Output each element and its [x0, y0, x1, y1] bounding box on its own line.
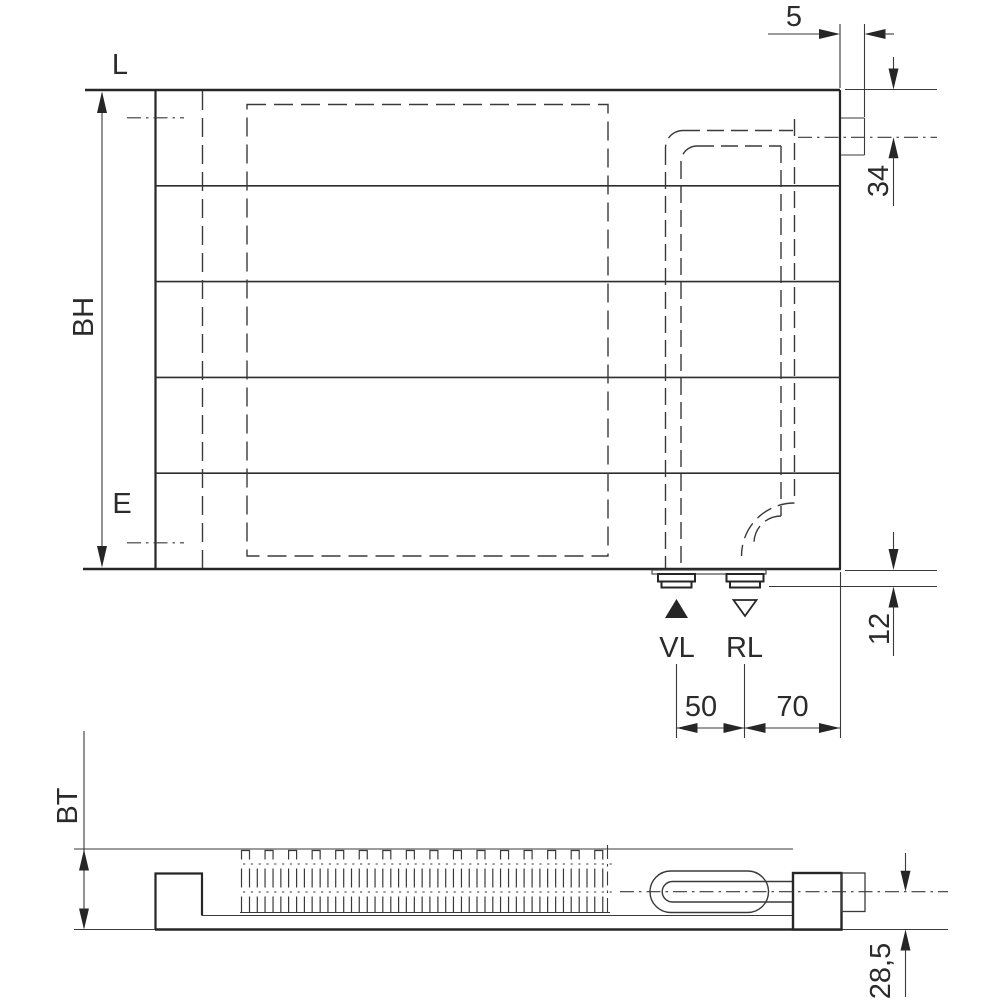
side-connection-stub — [841, 118, 865, 155]
label-rl: RL — [726, 632, 763, 664]
left-end-bracket — [156, 874, 203, 930]
label-bt: BT — [52, 787, 84, 824]
radiator-dimension-drawing: VL RL BH L E 5 34 12 — [0, 0, 1000, 1000]
dim-5-value: 5 — [786, 1, 802, 33]
supply-flow-triangle — [665, 599, 688, 618]
return-flow-triangle — [734, 600, 757, 616]
label-bh: BH — [68, 297, 100, 337]
dim-12-value: 12 — [864, 613, 896, 645]
label-l: L — [112, 49, 128, 81]
top-view — [74, 845, 948, 930]
label-vl: VL — [659, 632, 694, 664]
label-e: E — [112, 488, 131, 520]
connection-block — [793, 873, 842, 930]
vl-nipple — [658, 574, 695, 588]
panel-separator-lines — [155, 186, 840, 473]
dim-bh: BH — [68, 92, 107, 568]
dim-70-value: 70 — [776, 691, 808, 723]
dim-34-value: 34 — [863, 165, 895, 197]
dim-5: 5 — [768, 1, 894, 117]
dim-50-value: 50 — [685, 691, 717, 723]
bottom-connections: VL RL — [652, 570, 766, 664]
dim-12: 12 — [769, 532, 937, 656]
dim-bt: BT — [52, 731, 89, 930]
rl-nipple — [727, 574, 764, 588]
dim-34: 34 — [845, 57, 937, 206]
fin-footprint-hidden-rect — [247, 105, 608, 557]
dim-28-5: 28,5 — [865, 853, 911, 999]
dim-28-5-value: 28,5 — [865, 943, 897, 999]
drawing-svg: VL RL BH L E 5 34 12 — [0, 0, 1000, 1000]
front-view: VL RL — [83, 90, 937, 664]
